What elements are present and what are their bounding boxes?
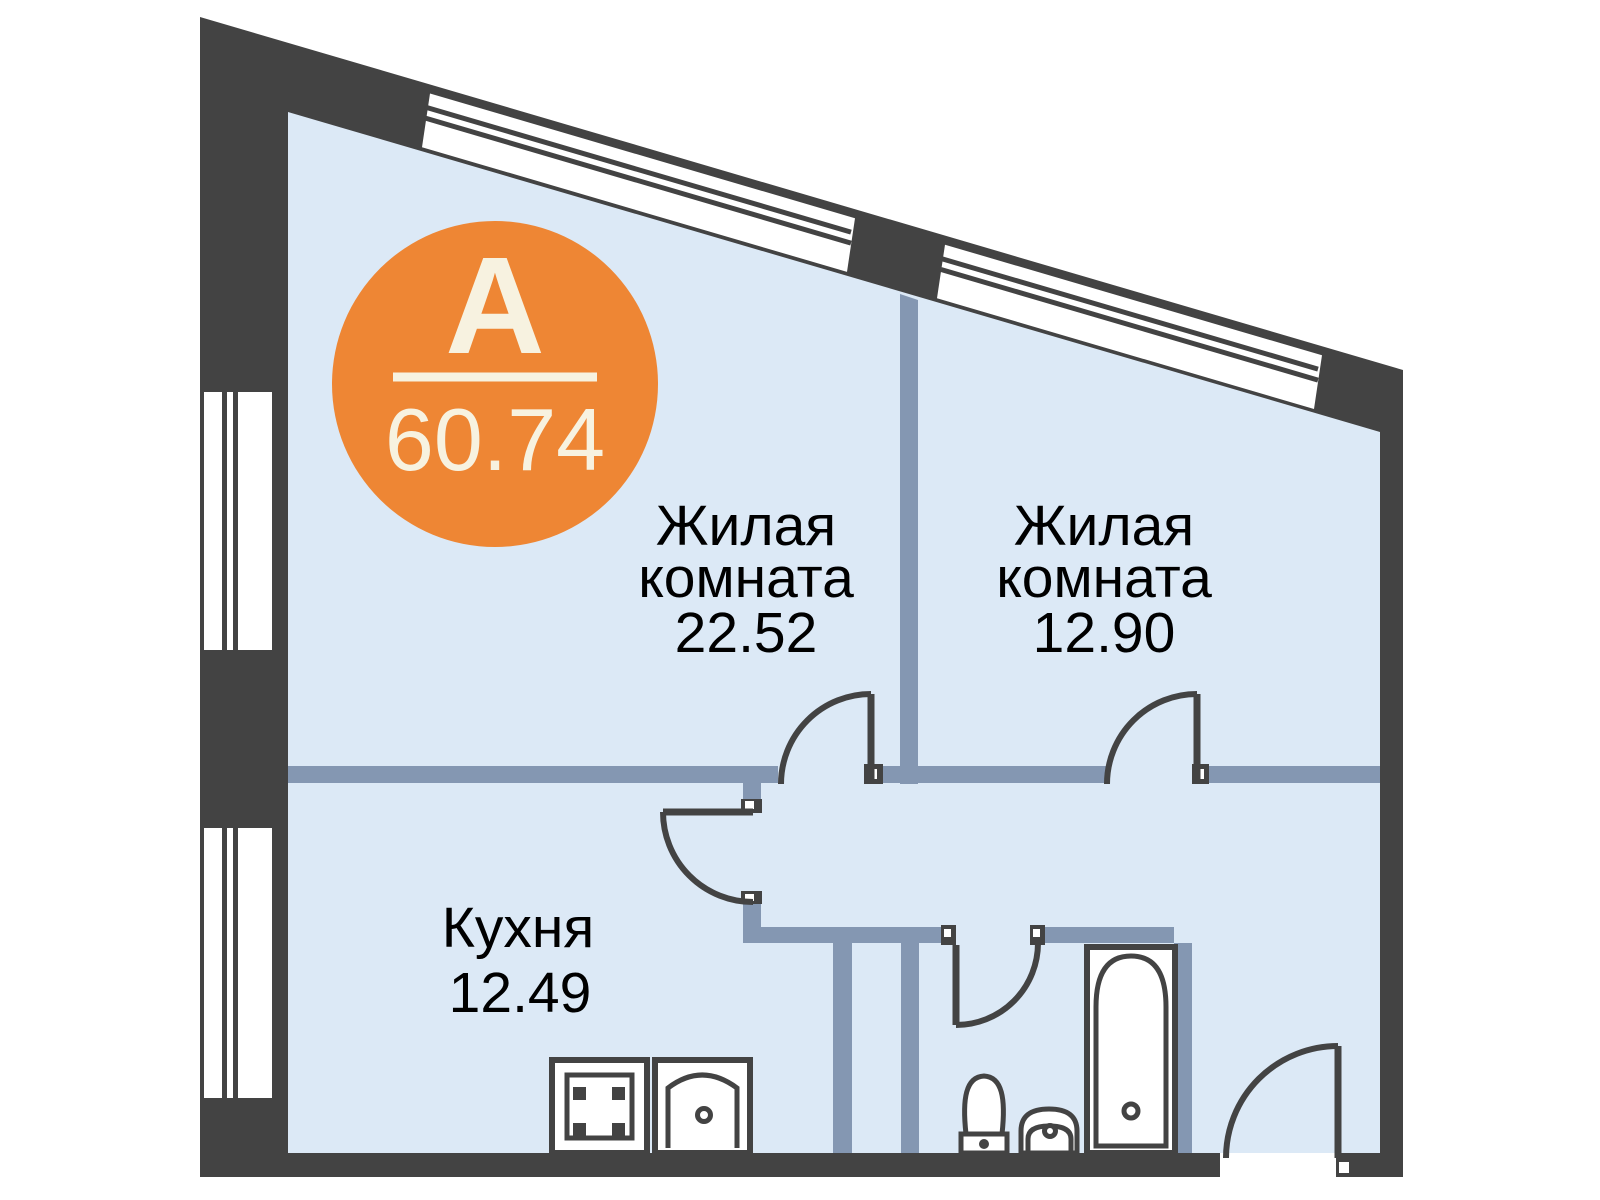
- partition-between-rooms: [900, 294, 918, 784]
- shaft-west-wall: [901, 943, 919, 1153]
- jamb-bathroom-right: [1030, 925, 1045, 945]
- room-label-kitchen: Кухня 12.49: [442, 896, 595, 1025]
- living-room-2-area: 12.90: [1033, 601, 1176, 665]
- kitchen-name: Кухня: [442, 896, 595, 960]
- stove-icon: [552, 1060, 647, 1153]
- partition-hall-right: [1194, 766, 1380, 783]
- kitchen-east-wall: [833, 943, 852, 1153]
- window-left-2: [204, 828, 272, 1098]
- badge-total-area: 60.74: [385, 390, 605, 489]
- kitchen-door-wall-upper: [743, 783, 761, 800]
- kitchen-sink-icon: [655, 1060, 750, 1153]
- partition-hall-left: [288, 766, 778, 783]
- window-left-1: [204, 392, 272, 650]
- floor-plan: A 60.74 Жилая комната 22.52 Жилая комнат…: [0, 0, 1600, 1200]
- kitchen-area: 12.49: [449, 961, 592, 1025]
- badge-letter: A: [445, 229, 545, 383]
- entrance-opening: [1220, 1153, 1352, 1178]
- bathtub-icon: [1087, 947, 1175, 1153]
- floor-plan-page: A 60.74 Жилая комната 22.52 Жилая комнат…: [0, 0, 1600, 1200]
- bathroom-north-wall-right: [1044, 927, 1174, 943]
- apartment-badge: A 60.74: [332, 221, 658, 547]
- toilet-icon: [961, 1076, 1007, 1153]
- bathroom-north-wall: [743, 927, 943, 943]
- partition-hall-mid: [866, 766, 1106, 783]
- washbasin-icon: [1021, 1109, 1077, 1153]
- living-room-1-area: 22.52: [675, 601, 818, 665]
- jamb-bathroom-left: [941, 925, 956, 945]
